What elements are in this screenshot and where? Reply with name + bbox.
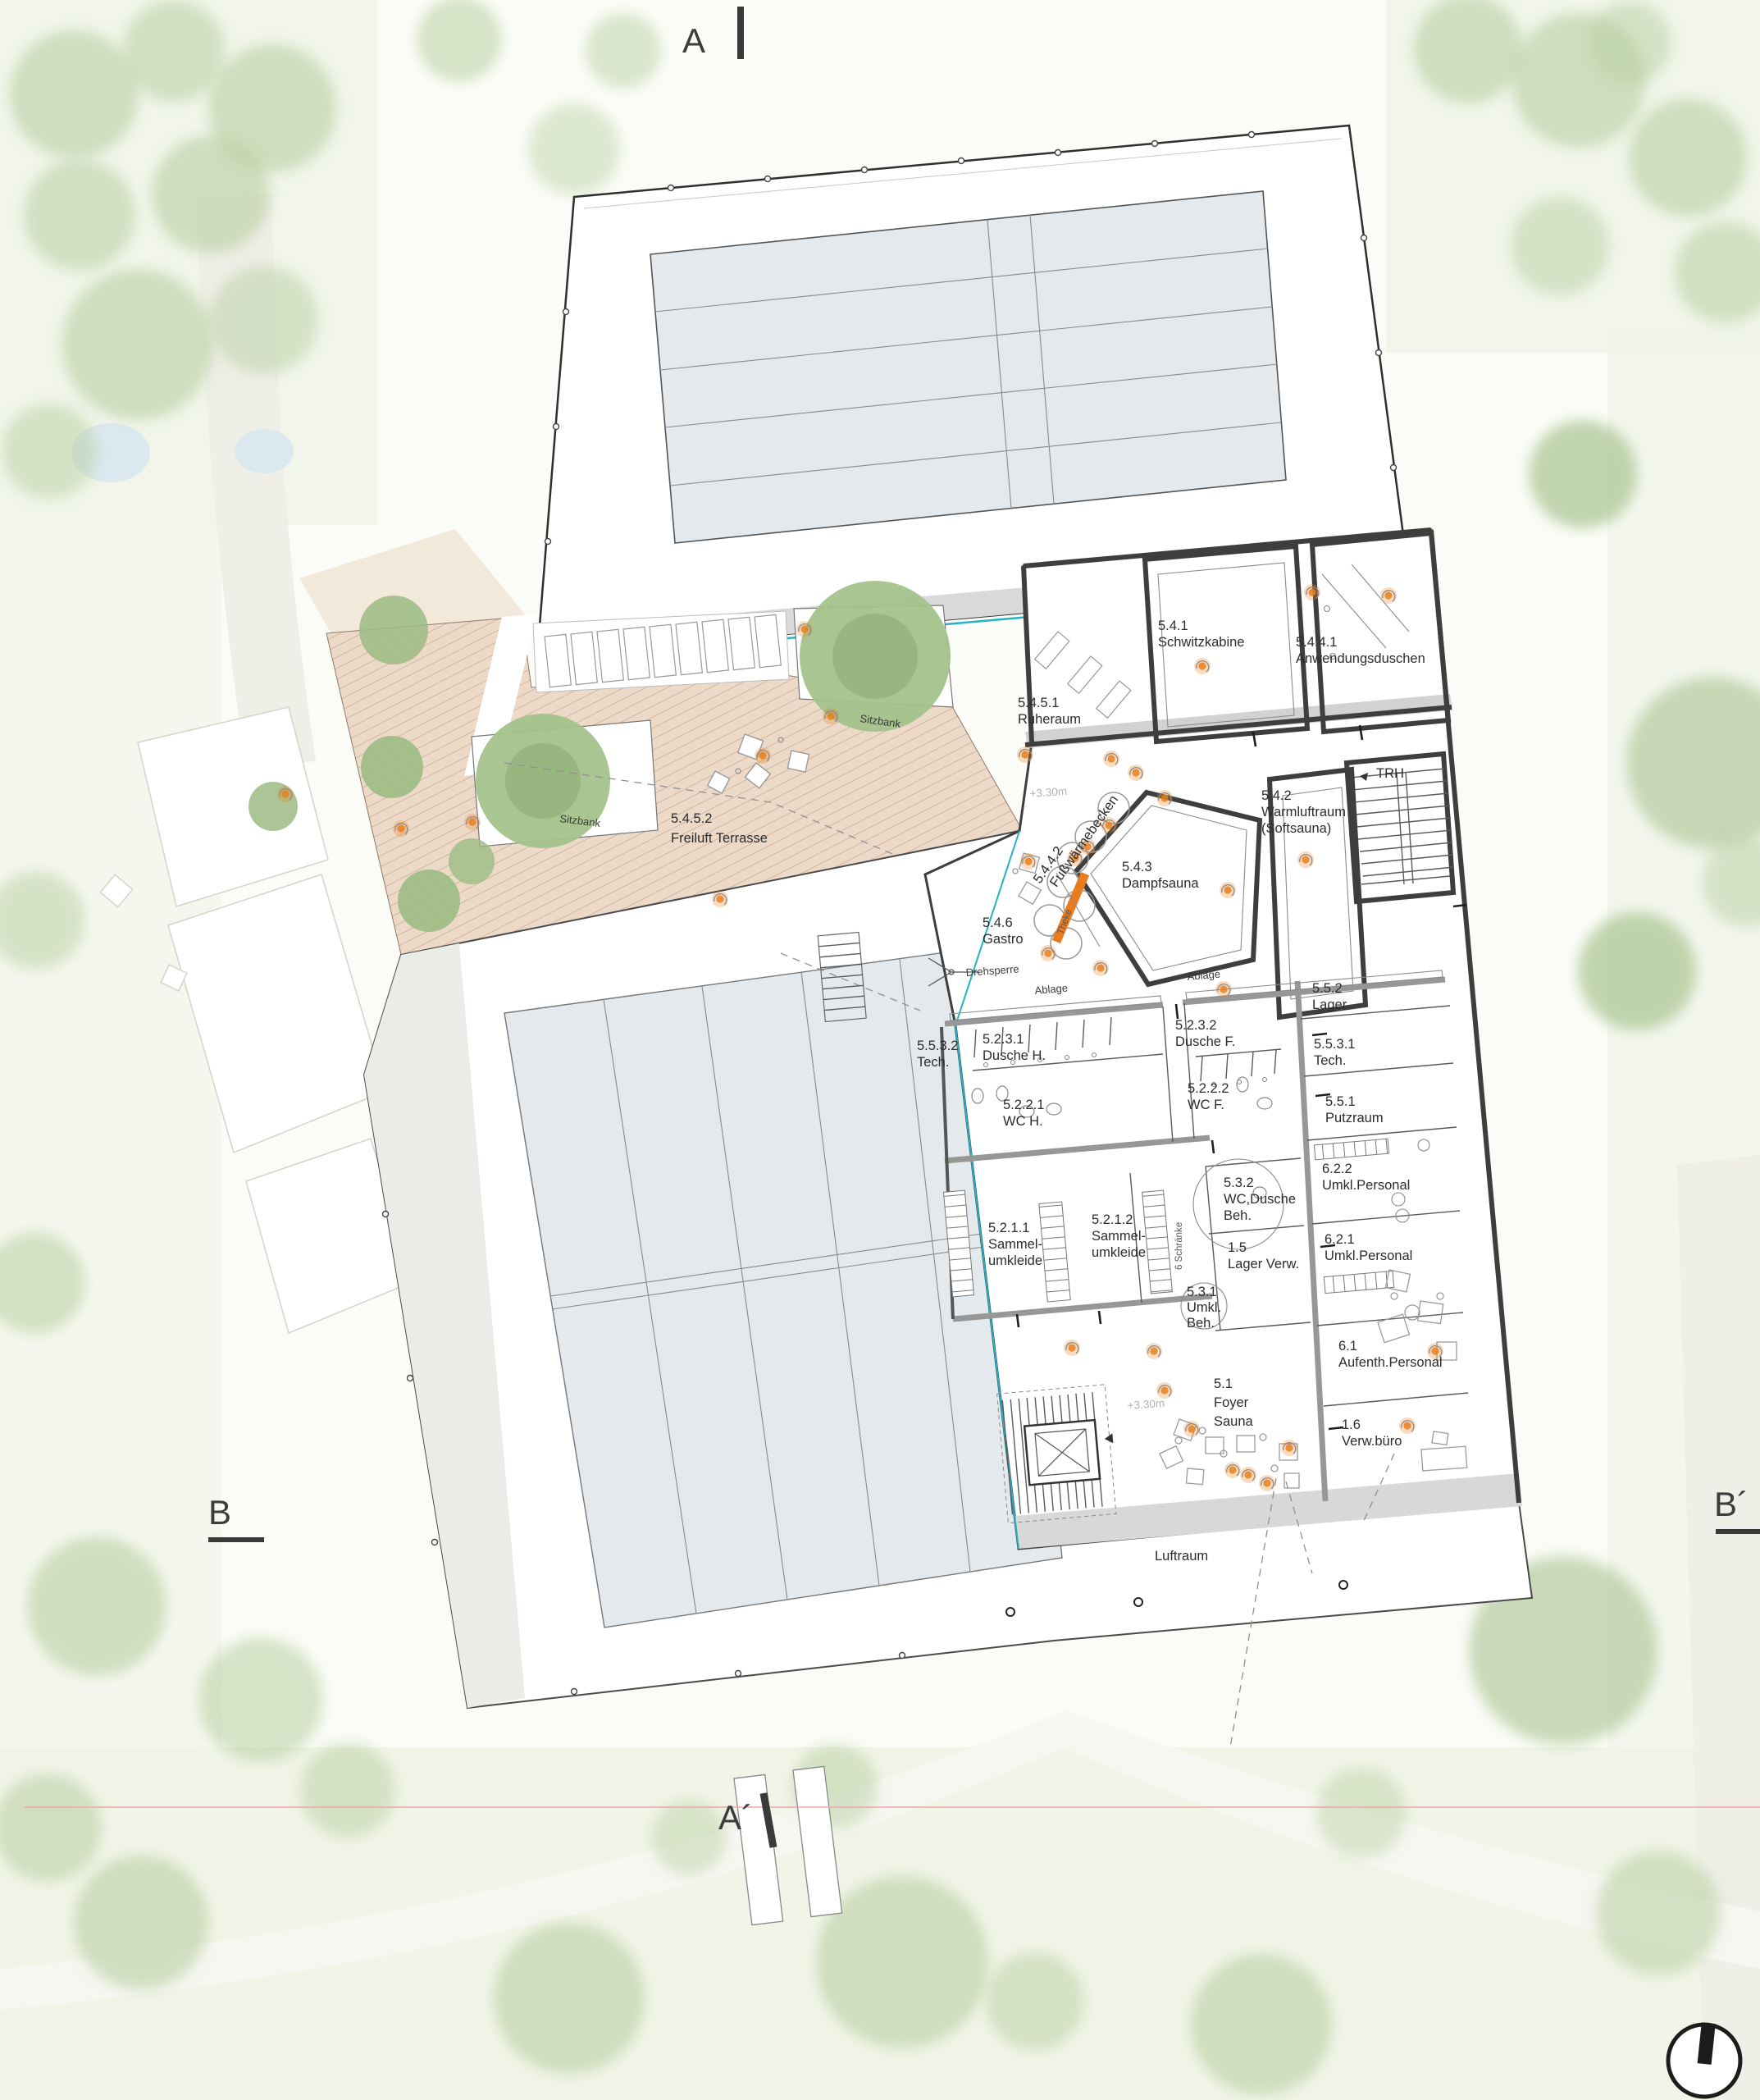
label-luftraum: Luftraum bbox=[1155, 1549, 1208, 1564]
site-plan: 5.4.5.1Ruheraum 5.4.1Schwitzkabine 5.4.4… bbox=[0, 0, 1760, 2100]
section-marker-a-prime: A´ bbox=[718, 1798, 753, 1837]
label-level-1: +3.30m bbox=[1029, 785, 1067, 800]
label-schraenke: 6 Schränke bbox=[1174, 1222, 1184, 1270]
section-marker-b: B bbox=[208, 1493, 231, 1532]
label-level-2: +3.30m bbox=[1127, 1397, 1165, 1412]
section-tick-b bbox=[208, 1537, 264, 1542]
section-marker-a: A bbox=[682, 21, 705, 60]
section-tick-a bbox=[737, 7, 744, 59]
section-tick-b-prime bbox=[1716, 1529, 1760, 1534]
pool-upper bbox=[650, 191, 1286, 543]
floor-plan-svg: 5.4.5.1Ruheraum 5.4.1Schwitzkabine 5.4.4… bbox=[0, 0, 1760, 2100]
north-arrow bbox=[1668, 2022, 1740, 2097]
svg-text:6 Schränke: 6 Schränke bbox=[1174, 1222, 1184, 1270]
pond bbox=[235, 429, 294, 473]
section-marker-b-prime: B´ bbox=[1714, 1485, 1749, 1523]
room-label-trh: TRH bbox=[1376, 766, 1404, 781]
